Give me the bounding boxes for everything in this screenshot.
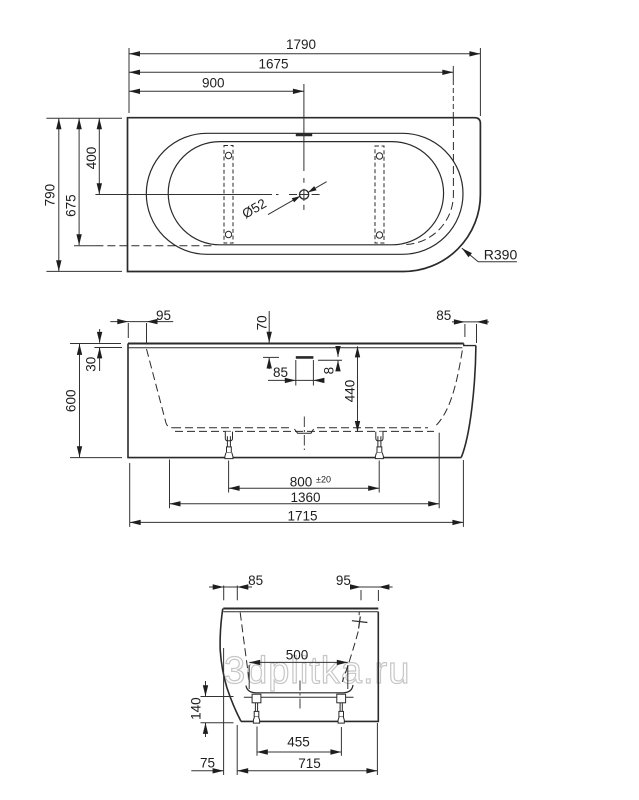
svg-text:85: 85 bbox=[273, 365, 288, 380]
svg-text:1790: 1790 bbox=[286, 37, 316, 52]
svg-text:8: 8 bbox=[322, 367, 337, 375]
svg-text:30: 30 bbox=[84, 357, 99, 372]
svg-text:455: 455 bbox=[287, 735, 310, 750]
svg-text:800: 800 bbox=[290, 475, 313, 490]
svg-text:R390: R390 bbox=[484, 247, 518, 263]
svg-text:3dplitka.ru: 3dplitka.ru bbox=[224, 650, 410, 692]
svg-text:±20: ±20 bbox=[316, 474, 331, 484]
svg-text:715: 715 bbox=[298, 756, 321, 771]
svg-text:790: 790 bbox=[43, 184, 58, 207]
svg-text:95: 95 bbox=[156, 308, 171, 323]
svg-text:Ø52: Ø52 bbox=[239, 196, 269, 222]
svg-text:1715: 1715 bbox=[287, 508, 317, 523]
svg-text:900: 900 bbox=[202, 76, 225, 91]
svg-text:1360: 1360 bbox=[290, 490, 320, 505]
svg-text:600: 600 bbox=[64, 390, 79, 413]
svg-text:675: 675 bbox=[63, 194, 78, 217]
svg-text:70: 70 bbox=[255, 315, 270, 330]
svg-text:400: 400 bbox=[84, 147, 99, 170]
svg-text:85: 85 bbox=[248, 573, 263, 588]
svg-text:85: 85 bbox=[436, 308, 451, 323]
svg-text:440: 440 bbox=[343, 380, 358, 403]
svg-text:500: 500 bbox=[286, 647, 309, 662]
svg-text:140: 140 bbox=[189, 697, 204, 720]
svg-text:75: 75 bbox=[200, 755, 215, 770]
svg-text:1675: 1675 bbox=[258, 56, 288, 71]
svg-text:95: 95 bbox=[336, 573, 351, 588]
